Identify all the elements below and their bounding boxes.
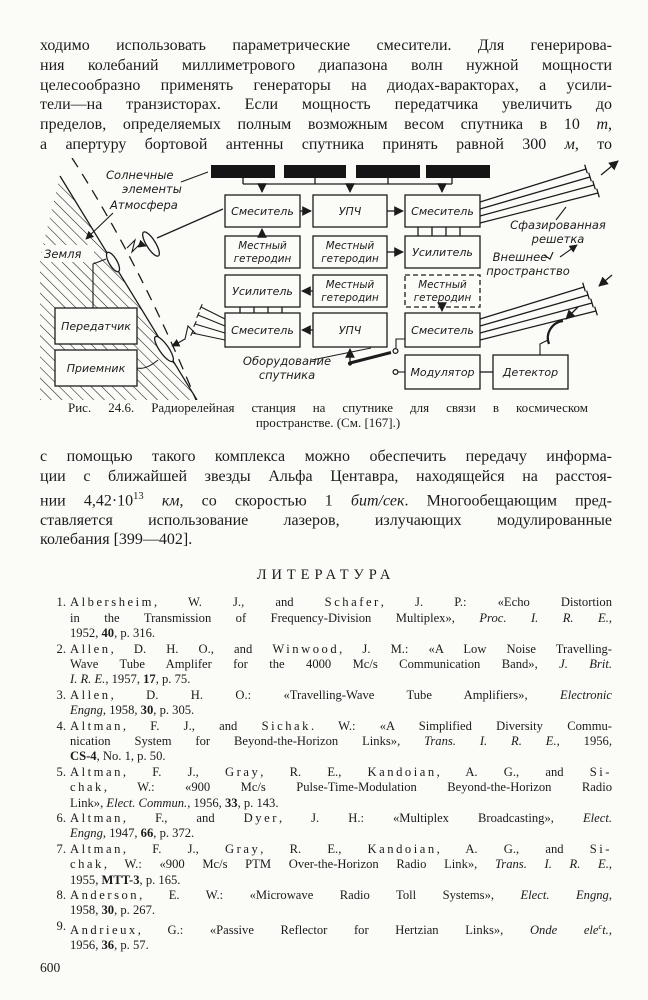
text-line: целесообразно применять генераторы на ди… [40,76,612,96]
reference-text: Altman, F. J., Gray, R. E., Kandoian, A.… [70,842,612,888]
solar-label-line2: элементы [122,182,182,196]
reference-text: Allen, D. H. O.: «Travelling-Wave Tube A… [70,688,612,719]
earth-label: Земля [44,247,81,261]
text-line: CS-4, No. 1, p. 50. [70,749,612,764]
text-line: Altman, F. J., Gray, R. E., Kandoian, A.… [70,842,612,857]
page-content: ходимо использовать параметрические смес… [0,0,648,976]
text-line: тели—на транзисторах. Если мощность пере… [40,95,612,115]
reference-item: 9.Andrieux, G.: «Passive Reflector for H… [40,919,612,954]
text-line: 1958, 30, p. 267. [70,903,612,918]
reference-item: 4.Altman, F. J., and Sichak. W.: «A Simp… [40,719,612,765]
reference-number: 1. [48,595,66,610]
box-label-detector: Детектор [502,366,558,379]
text-line: ставляется использование лазеров, излуча… [40,511,612,531]
text-line: Anderson, E. W.: «Microwave Radio Toll S… [70,888,612,903]
equipment-label-line2: спутника [259,368,315,382]
text-line: Link», Elect. Commun., 1956, 33, p. 143. [70,796,612,811]
reference-number: 7. [48,842,66,857]
transmitter-label: Передатчик [61,320,131,333]
reference-text: Altman, F., and Dyer, J. H.: «Multiplex … [70,811,612,842]
solar-bus [243,178,452,192]
box-label-local-osc: Местный [326,279,375,291]
lens-antenna-uplink [140,230,162,259]
text-line: Allen, D. H. O.: «Travelling-Wave Tube A… [70,688,612,703]
reference-item: 7.Altman, F. J., Gray, R. E., Kandoian, … [40,842,612,888]
downlink-feeds [191,304,225,340]
solar-label-line1: Солнечные [106,168,173,182]
text-line: с помощью такого комплекса можно обеспеч… [40,447,612,467]
outer-space-label-line1: Внешнее [493,250,548,264]
reference-number: 4. [48,719,66,734]
box-label-amplifier: Усилитель [232,285,293,298]
uplink-arrow [140,244,146,246]
phased-array-label-line2: решетка [531,232,585,246]
text-line: chak, W.: «900 Mc/s PTM Over-the-Horizon… [70,857,612,872]
box-label-local-osc: гетеродин [234,253,292,265]
reference-item: 1.Albersheim, W. J., and Schafer, J. P.:… [40,595,612,641]
box-label-amplifier: Усилитель [412,246,473,259]
reference-item: 3.Allen, D. H. O.: «Travelling-Wave Tube… [40,688,612,719]
reference-text: Allen, D. H. O., and Winwood, J. M.: «A … [70,642,612,688]
text-line: ции с ближайшей звезды Альфа Центавра, н… [40,467,612,487]
reference-text: Andrieux, G.: «Passive Reflector for Her… [70,919,612,954]
text-line: колебания [399—402]. [40,530,612,550]
reference-number: 9. [48,919,66,934]
switch-contact-up [393,348,398,353]
box-label-if-amp: УПЧ [339,324,362,337]
switch-arm [350,352,391,363]
reference-item: 6.Altman, F., and Dyer, J. H.: «Multiple… [40,811,612,842]
text-line: 1952, 40, p. 316. [70,626,612,641]
phased-array-top [480,161,618,223]
reference-item: 8.Anderson, E. W.: «Microwave Radio Toll… [40,888,612,919]
equipment-label-line1: Оборудование [243,354,331,368]
box-label-local-osc: гетеродин [414,292,472,304]
dish-antenna [540,307,578,355]
paragraph-top: ходимо использовать параметрические смес… [40,36,612,155]
box-label-mixer: Смеситель [231,324,294,337]
figure-24-6: Земля Передатчик Приемник [0,158,648,400]
outer-space-arrow [560,245,577,257]
text-line: а апертуру бортовой антенны спутника при… [40,135,612,155]
reference-number: 5. [48,765,66,780]
text-line: ходимо использовать параметрические смес… [40,36,612,56]
references-list: 1.Albersheim, W. J., and Schafer, J. P.:… [40,595,612,954]
figure-caption: Рис. 24.6. Радиорелейная станция на спут… [68,400,588,431]
reference-number: 8. [48,888,66,903]
reference-item: 2.Allen, D. H. O., and Winwood, J. M.: «… [40,642,612,688]
phased-array-label-line1: Сфазированная [510,218,606,232]
text-line: Altman, F. J., Gray, R. E., Kandoian, A.… [70,765,612,780]
text-line: Altman, F. J., and Sichak. W.: «A Simpli… [70,719,612,734]
box-label-mixer: Смеситель [231,205,294,218]
transmit-direction-arrow [601,161,618,175]
text-line: 1956, 36, p. 57. [70,938,612,953]
uplink-zigzag [127,240,140,252]
text-line: Allen, D. H. O., and Winwood, J. M.: «A … [70,642,612,657]
solar-panel-bar [211,165,275,178]
reference-text: Albersheim, W. J., and Schafer, J. P.: «… [70,595,612,641]
references-heading: ЛИТЕРАТУРА [40,567,612,584]
text-line: in the Transmission of Frequency-Divisio… [70,611,612,626]
text-line: нии 4,42·1013 км, со скоростью 1 бит/сек… [40,487,612,511]
phased-array-bottom [480,275,612,340]
reference-text: Altman, F. J., and Sichak. W.: «A Simpli… [70,719,612,765]
page-number: 600 [40,960,612,976]
reference-item: 5.Altman, F. J., Gray, R. E., Kandoian, … [40,765,612,811]
caption-line1: Рис. 24.6. Радиорелейная станция на спут… [68,400,588,416]
caption-line2: пространстве. (См. [167].) [68,415,588,431]
text-line: chak, W.: «900 Mc/s Pulse-Time-Modulatio… [70,780,612,795]
box-label-modulator: Модулятор [410,366,474,379]
receiver-label: Приемник [67,362,126,375]
text-line: Wave Tube Amplifer for the 4000 Mc/s Com… [70,657,612,672]
text-line: ния колебаний миллиметрового диапазона в… [40,56,612,76]
box-label-local-osc: Местный [238,240,287,252]
solar-panel-bar [284,165,346,178]
text-line: Andrieux, G.: «Passive Reflector for Her… [70,919,612,939]
reference-text: Anderson, E. W.: «Microwave Radio Toll S… [70,888,612,919]
atmosphere-label: Атмосфера [109,198,178,212]
paragraph-bottom: с помощью такого комплекса можно обеспеч… [40,447,612,550]
solar-panel-bar [356,165,420,178]
text-line: Altman, F., and Dyer, J. H.: «Multiplex … [70,811,612,826]
solar-label-pointer [181,172,208,182]
box-label-local-osc: гетеродин [321,253,379,265]
switch-contact-down [393,369,398,374]
reference-text: Altman, F. J., Gray, R. E., Kandoian, A.… [70,765,612,811]
reference-number: 3. [48,688,66,703]
text-line: I. R. E., 1957, 17, p. 75. [70,672,612,687]
text-line: 1955, MTT-3, p. 165. [70,873,612,888]
solar-panels [211,165,490,178]
text-line: Albersheim, W. J., and Schafer, J. P.: «… [70,595,612,610]
box-label-mixer: Смеситель [411,324,474,337]
reference-number: 2. [48,642,66,657]
solar-panel-bar [426,165,490,178]
receive-direction-arrow [599,275,612,286]
uplink-beam [157,209,223,238]
text-line: nication System for Beyond-the-Horizon L… [70,734,612,749]
reference-number: 6. [48,811,66,826]
box-label-mixer: Смеситель [411,205,474,218]
text-line: Engng, 1958, 30, p. 305. [70,703,612,718]
outer-space-label-line2: пространство [486,264,570,278]
downlink-zigzag [178,326,196,343]
box-label-local-osc: Местный [326,240,375,252]
book-page: ходимо использовать параметрические смес… [0,0,648,1000]
text-line: Engng, 1947, 66, p. 372. [70,826,612,841]
box-label-local-osc: Местный [418,279,467,291]
text-line: пределов, определяемых полным возможным … [40,115,612,135]
box-label-if-amp: УПЧ [339,205,362,218]
box-label-local-osc: гетеродин [321,292,379,304]
